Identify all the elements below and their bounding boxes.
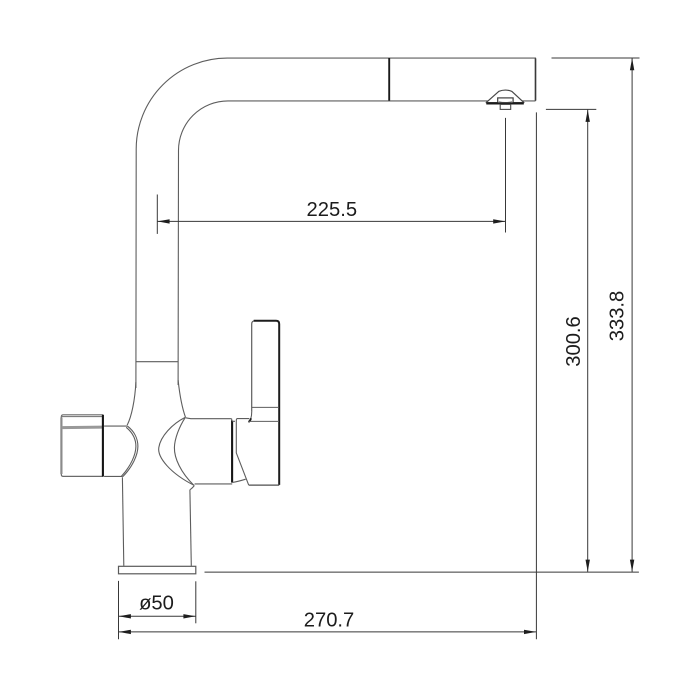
svg-text:270.7: 270.7 [304,610,355,632]
svg-text:225.5: 225.5 [307,199,358,221]
svg-text:300.6: 300.6 [563,316,585,367]
svg-text:333.8: 333.8 [607,291,629,342]
svg-text:ø50: ø50 [139,593,174,615]
